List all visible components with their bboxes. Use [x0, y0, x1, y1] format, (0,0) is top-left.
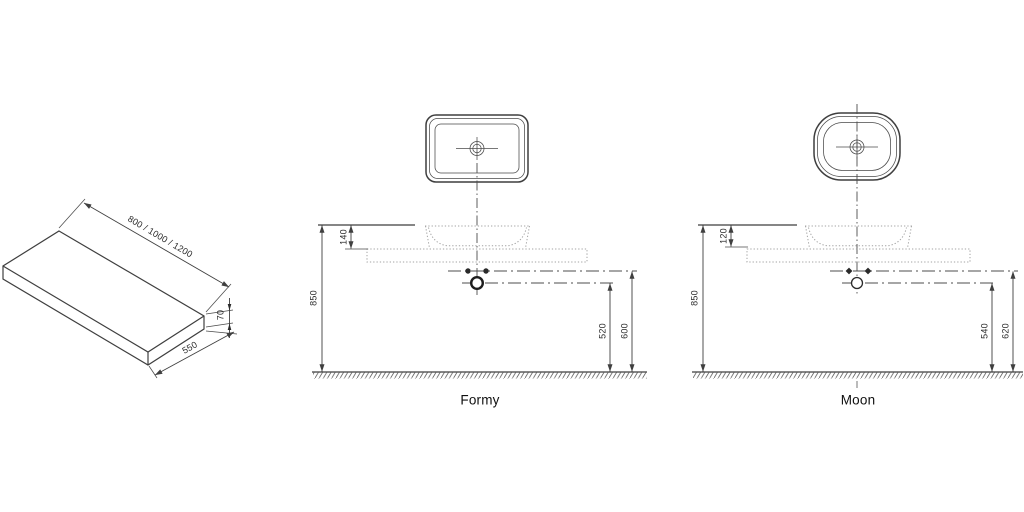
formy-front-elevation [312, 225, 647, 379]
formy-model-label: Formy [460, 393, 499, 407]
moon-dimension-lines [703, 226, 1013, 372]
moon-model-label: Moon [841, 393, 876, 407]
formy-supply-height-dim-label: 600 [621, 323, 630, 339]
moon-front-elevation [692, 225, 1023, 379]
moon-basin-outline [805, 226, 912, 248]
formy-height-dim-label: 850 [310, 290, 319, 306]
moon-drain-height-dim-label: 540 [981, 323, 990, 339]
technical-drawing-page: 800 / 1000 / 1200 70 550 140 850 520 600… [0, 0, 1024, 512]
formy-drain-height-dim-label: 520 [599, 323, 608, 339]
iso-thickness-dim-label: 70 [217, 310, 226, 320]
formy-basin-outline [425, 226, 530, 248]
moon-supply-line [830, 268, 1018, 275]
formy-basin-height-dim-label: 140 [340, 229, 349, 245]
countertop-isometric-view [3, 199, 237, 378]
moon-section [692, 104, 1023, 388]
formy-section [312, 115, 647, 379]
moon-height-dim-label: 850 [691, 290, 700, 306]
moon-countertop-outline [747, 249, 970, 262]
moon-supply-height-dim-label: 620 [1002, 323, 1011, 339]
moon-basin-height-dim-label: 120 [720, 228, 729, 244]
formy-supply-line [448, 268, 637, 273]
moon-drain-outlet [842, 278, 997, 289]
formy-drain-icon [456, 137, 498, 160]
formy-floor-line [312, 372, 647, 379]
formy-drain-outlet [462, 277, 615, 289]
moon-floor-line [692, 372, 1023, 379]
drawing-canvas [0, 0, 1024, 512]
